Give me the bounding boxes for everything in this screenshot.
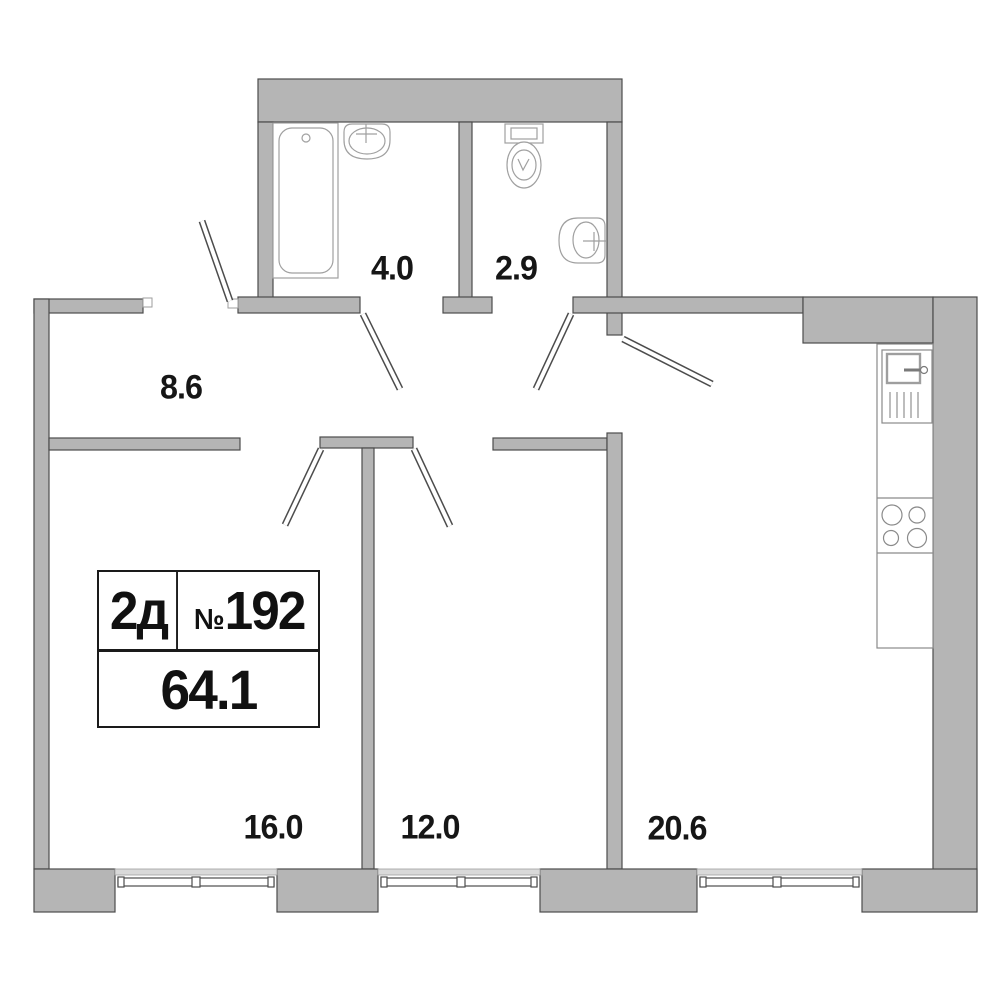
wall-right-outer — [933, 297, 977, 911]
wall-pier-1 — [34, 869, 115, 912]
room16-door-leaf — [285, 449, 321, 525]
bathtub-icon — [273, 123, 338, 278]
wall-room12-kitchen — [607, 433, 622, 869]
wall-pier-2 — [277, 869, 378, 912]
unit-info-top-row: 2д №192 — [99, 572, 318, 652]
wall-pier-3 — [540, 869, 697, 912]
room-area-bedroom-2: 12.0 — [400, 809, 459, 848]
kitchen-door-leaf — [623, 339, 712, 384]
wall-top-outer — [258, 79, 622, 122]
wall-room16-room12 — [362, 448, 374, 869]
floorplan-canvas: 4.0 2.9 8.6 16.0 12.0 20.6 2д №192 64.1 — [0, 0, 1000, 1000]
entrance-door-leaf — [202, 221, 230, 301]
unit-total-area: 64.1 — [104, 652, 312, 726]
wall-hall-bottom-left — [49, 438, 240, 450]
entrance-jamb-left — [143, 298, 152, 307]
unit-info-box: 2д №192 64.1 — [97, 570, 320, 728]
wall-hall-bottom-cap — [320, 437, 413, 448]
bathroom-door-leaf — [363, 314, 400, 389]
walls — [34, 79, 977, 912]
wall-bath-left — [258, 122, 273, 298]
room-area-bathroom: 4.0 — [371, 250, 413, 289]
unit-type-label: 2д — [101, 572, 178, 649]
doors — [143, 221, 712, 526]
bathroom-sink-icon — [344, 124, 390, 159]
room-area-toilet: 2.9 — [495, 250, 537, 289]
wall-hall-top-right — [573, 297, 803, 313]
unit-number-sign: № — [194, 604, 225, 636]
wall-pier-4 — [862, 869, 977, 912]
toilet-icon — [505, 124, 543, 188]
window-room12 — [378, 869, 540, 887]
windows — [115, 869, 862, 887]
room-area-bedroom-1: 16.0 — [243, 809, 302, 848]
unit-number-value: 192 — [224, 581, 304, 641]
wall-hall-top-mid2 — [443, 297, 492, 313]
room-area-kitchen-living: 20.6 — [647, 810, 706, 849]
room12-door-leaf — [414, 449, 450, 526]
unit-number-cell: №192 — [180, 572, 318, 649]
window-kitchen — [697, 869, 862, 887]
toilet-door-leaf — [536, 314, 571, 389]
floorplan-drawing — [0, 0, 1000, 1000]
wall-hall-top-mid1 — [238, 297, 360, 313]
wall-hall-top-left — [34, 299, 143, 313]
window-room16 — [115, 869, 277, 887]
wall-kitchen-top-chunk — [803, 297, 933, 343]
kitchen-sink-icon — [882, 350, 932, 423]
room-area-hallway: 8.6 — [160, 369, 202, 408]
wall-hall-bottom-right — [493, 438, 607, 450]
toilet-sink-icon — [559, 218, 606, 263]
wall-bath-toilet — [459, 122, 472, 298]
wall-left-outer — [34, 299, 49, 869]
